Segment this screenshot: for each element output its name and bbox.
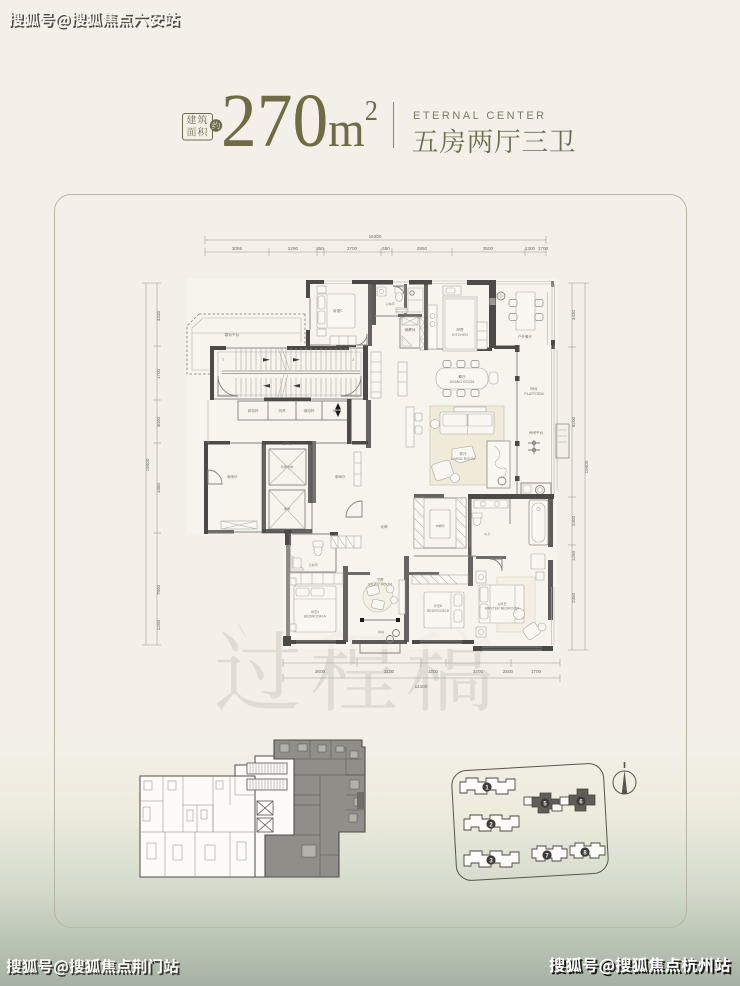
svg-text:ET-1: ET-1 (283, 442, 291, 446)
svg-text:7800: 7800 (156, 584, 161, 595)
svg-text:2200: 2200 (156, 619, 161, 630)
svg-text:2850: 2850 (417, 246, 428, 251)
svg-text:3055: 3055 (232, 246, 243, 251)
svg-text:2950: 2950 (571, 592, 576, 603)
svg-text:BEDROOM A: BEDROOM A (304, 615, 326, 619)
svg-text:1250: 1250 (571, 550, 576, 561)
svg-text:MASTER BEDROOM: MASTER BEDROOM (485, 607, 520, 611)
svg-text:16300: 16300 (369, 234, 382, 239)
svg-text:1700: 1700 (531, 669, 542, 674)
svg-text:1700: 1700 (156, 368, 161, 379)
svg-text:2290: 2290 (288, 246, 299, 251)
svg-text:STUDY ROOM: STUDY ROOM (368, 583, 392, 587)
svg-text:1380: 1380 (156, 482, 161, 493)
svg-text:DINING ROOM: DINING ROOM (450, 380, 475, 384)
svg-text:KITCHEN: KITCHEN (452, 333, 468, 337)
svg-text:2400: 2400 (571, 515, 576, 526)
svg-text:350: 350 (316, 246, 324, 251)
svg-text:19400: 19400 (584, 460, 589, 473)
svg-text:1200: 1200 (428, 669, 439, 674)
svg-text:LIVING ROOM: LIVING ROOM (451, 457, 475, 461)
svg-text:1300: 1300 (525, 246, 536, 251)
svg-text:3430: 3430 (571, 309, 576, 320)
svg-text:2500: 2500 (503, 669, 514, 674)
svg-text:BEDROOM B: BEDROOM B (427, 609, 450, 613)
svg-text:3430: 3430 (156, 310, 161, 321)
svg-text:3100: 3100 (384, 669, 395, 674)
svg-text:3500: 3500 (483, 246, 494, 251)
svg-text:1700: 1700 (538, 246, 549, 251)
svg-text:550: 550 (382, 246, 390, 251)
svg-text:PLATFORM: PLATFORM (524, 392, 543, 396)
svg-text:14100: 14100 (415, 684, 428, 689)
svg-text:3000: 3000 (156, 416, 161, 427)
svg-text:8200: 8200 (571, 416, 576, 427)
svg-text:J: J (352, 358, 354, 362)
svg-text:3200: 3200 (473, 669, 484, 674)
svg-text:3600: 3600 (315, 669, 326, 674)
svg-text:19400: 19400 (145, 458, 150, 471)
svg-text:2700: 2700 (347, 246, 358, 251)
